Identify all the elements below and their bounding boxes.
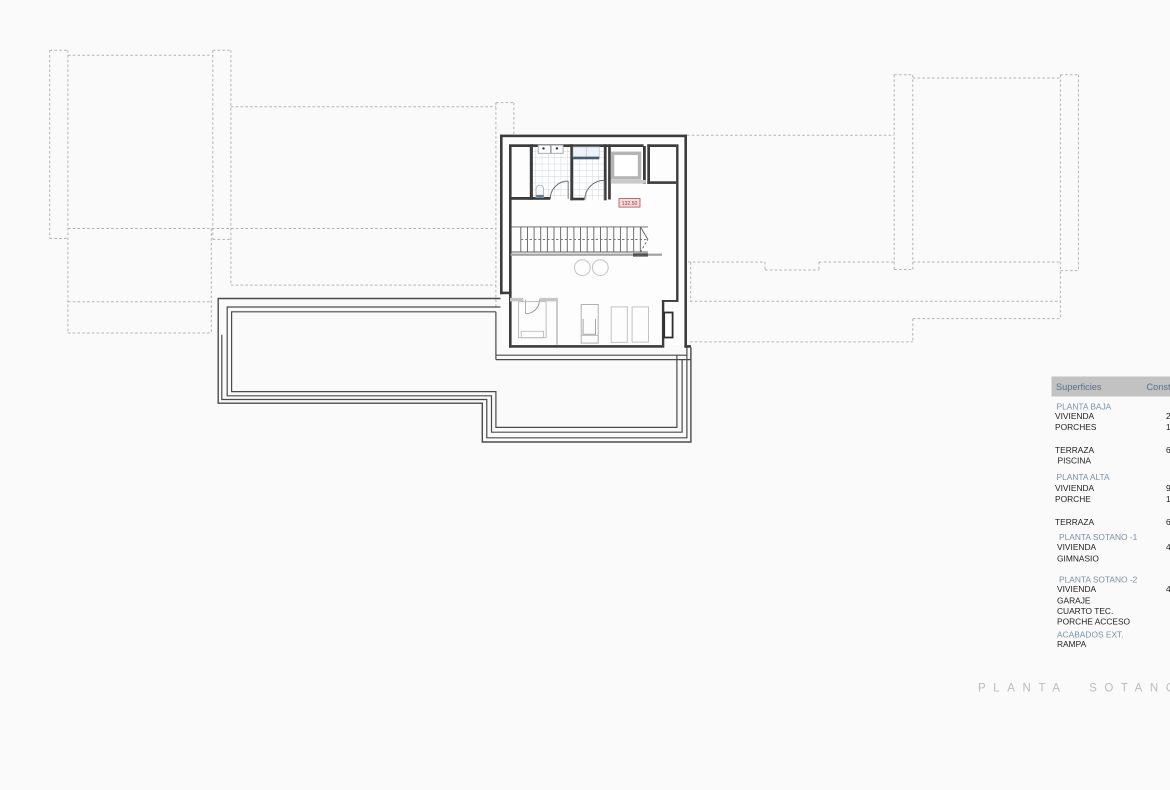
svg-text:PORCHE: PORCHE — [1055, 494, 1091, 504]
svg-text:GIMNASIO: GIMNASIO — [1057, 554, 1099, 564]
svg-text:CUARTO TEC.: CUARTO TEC. — [1057, 606, 1113, 616]
svg-text:VIVIENDA: VIVIENDA — [1055, 483, 1095, 493]
svg-text:RAMPA: RAMPA — [1057, 639, 1087, 649]
svg-text:9: 9 — [1166, 483, 1170, 493]
svg-text:Superficies: Superficies — [1056, 382, 1102, 392]
svg-text:PLANTA ALTA: PLANTA ALTA — [1057, 472, 1110, 482]
svg-text:4: 4 — [1166, 584, 1170, 594]
svg-text:Const: Const — [1147, 382, 1170, 392]
svg-text:PORCHE ACCESO: PORCHE ACCESO — [1057, 617, 1131, 627]
svg-text:PORCHES: PORCHES — [1055, 422, 1097, 432]
svg-text:PLANTA SOTANO -1: PLANTA SOTANO -1 — [1059, 532, 1138, 542]
svg-text:PLANTA BAJA: PLANTA BAJA — [1057, 401, 1112, 411]
svg-text:1: 1 — [1166, 422, 1170, 432]
svg-text:TERRAZA: TERRAZA — [1055, 517, 1095, 527]
svg-text:TERRAZA: TERRAZA — [1055, 445, 1095, 455]
svg-text:GARAJE: GARAJE — [1057, 595, 1091, 605]
svg-text:VIVIENDA: VIVIENDA — [1057, 584, 1097, 594]
svg-text:PLANTA SOTANO: PLANTA SOTANO — [978, 683, 1170, 695]
svg-text:PISCINA: PISCINA — [1058, 455, 1092, 465]
svg-text:2: 2 — [1166, 411, 1170, 421]
svg-text:1: 1 — [1166, 494, 1170, 504]
svg-text:6: 6 — [1166, 445, 1170, 455]
svg-text:6: 6 — [1166, 517, 1170, 527]
svg-text:132.50: 132.50 — [622, 201, 638, 207]
svg-text:4: 4 — [1166, 542, 1170, 552]
svg-text:VIVIENDA: VIVIENDA — [1057, 542, 1097, 552]
svg-text:VIVIENDA: VIVIENDA — [1055, 411, 1095, 421]
